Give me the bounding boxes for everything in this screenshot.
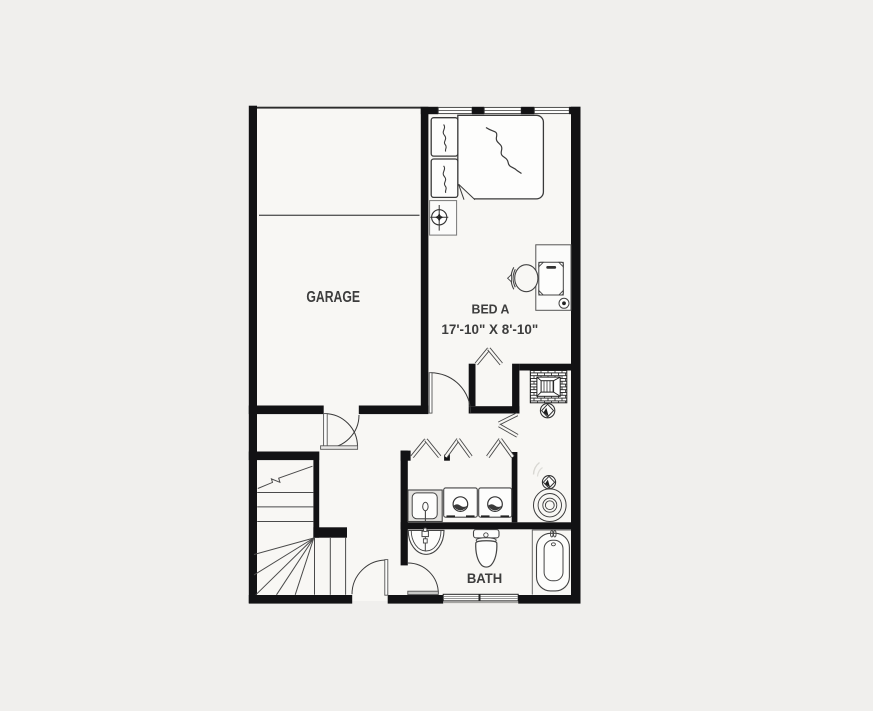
svg-text:GARAGE: GARAGE	[306, 288, 360, 306]
svg-text:17'-10" X 8'-10": 17'-10" X 8'-10"	[441, 322, 538, 337]
svg-text:BED A: BED A	[472, 302, 510, 316]
svg-text:BATH: BATH	[467, 571, 502, 586]
